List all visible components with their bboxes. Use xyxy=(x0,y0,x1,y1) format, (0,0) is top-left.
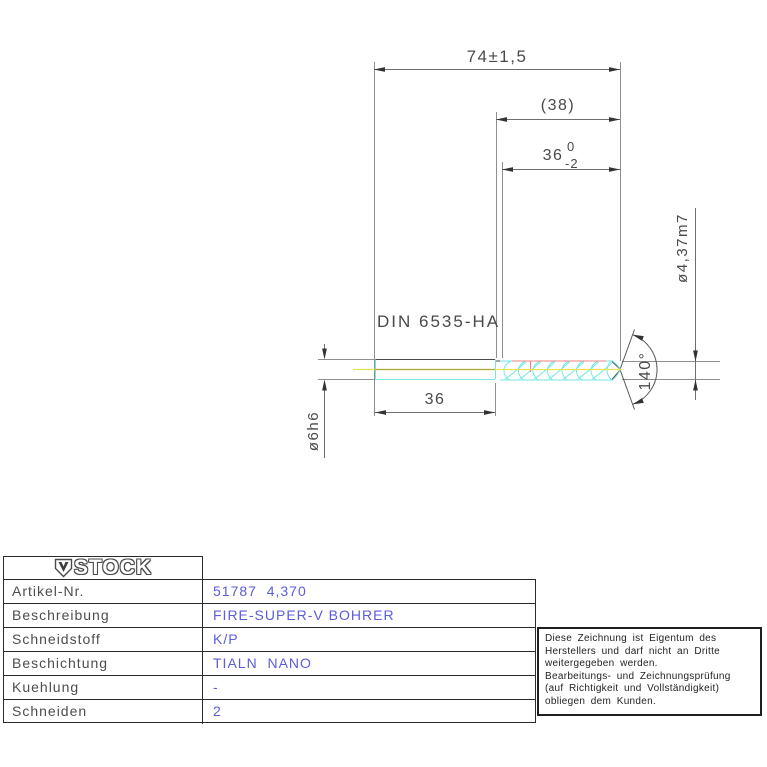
dim-overall-length: 74±1,5 xyxy=(467,47,528,66)
row-label: Kuehlung xyxy=(4,676,203,699)
dim-point-angle: 140° xyxy=(637,351,654,390)
table-row: Schneidstoff K/P xyxy=(4,628,535,652)
table-row: Artikel-Nr. 51787 4,370 xyxy=(4,580,535,604)
row-label: Schneidstoff xyxy=(4,628,203,651)
row-label: Beschreibung xyxy=(4,604,203,627)
row-value: K/P xyxy=(203,628,535,651)
din-standard-label: DIN 6535-HA xyxy=(377,312,500,331)
dim-shank-diameter: ø6h6 xyxy=(305,411,322,451)
row-label: Artikel-Nr. xyxy=(4,580,203,603)
row-value: 51787 4,370 xyxy=(203,580,535,603)
stock-shield-v-icon xyxy=(54,558,73,578)
extension-lines xyxy=(318,62,720,416)
tip-cyan-upper xyxy=(613,362,621,370)
dim-flute-length-ref: (38) xyxy=(541,97,575,114)
logo-cell: STOCK xyxy=(3,556,203,580)
table-row: Beschreibung FIRE-SUPER-V BOHRER xyxy=(4,604,535,628)
dim-shank-length: 36 xyxy=(425,391,446,408)
table-row: Kuehlung - xyxy=(4,676,535,700)
row-label: Schneiden xyxy=(4,700,203,724)
row-value: 2 xyxy=(203,700,535,724)
row-value: TIALN NANO xyxy=(203,652,535,675)
note-line: obliegen dem Kunden. xyxy=(545,696,754,709)
row-value: FIRE-SUPER-V BOHRER xyxy=(203,604,535,627)
table-row: Beschichtung TIALN NANO xyxy=(4,652,535,676)
note-line: Bearbeitungs- und Zeichnungsprüfung xyxy=(545,671,754,684)
stock-logo-text: STOCK xyxy=(74,558,152,578)
dim-flute-length: 36 xyxy=(543,147,564,164)
note-line: Herstellers und darf nicht an Dritte xyxy=(545,646,754,659)
dim-flute-length-tol-upper: 0 xyxy=(567,139,575,154)
note-line: (auf Richtigkeit und Vollständigkeit) xyxy=(545,683,754,696)
table-row: Schneiden 2 xyxy=(4,700,535,724)
note-line: Diese Zeichnung ist Eigentum des xyxy=(545,633,754,646)
dim-cutting-diameter: ø4,37m7 xyxy=(674,213,691,283)
note-line: weitergegeben werden. xyxy=(545,658,754,671)
drawing-sheet: { "drawing": { "standard_label": "DIN 65… xyxy=(0,0,767,767)
ownership-note-box: Diese Zeichnung ist Eigentum des Herstel… xyxy=(537,627,762,716)
row-label: Beschichtung xyxy=(4,652,203,675)
title-block-table: Artikel-Nr. 51787 4,370 Beschreibung FIR… xyxy=(3,579,536,723)
dim-flute-length-tol-lower: -2 xyxy=(565,156,579,171)
row-value: - xyxy=(203,676,535,699)
